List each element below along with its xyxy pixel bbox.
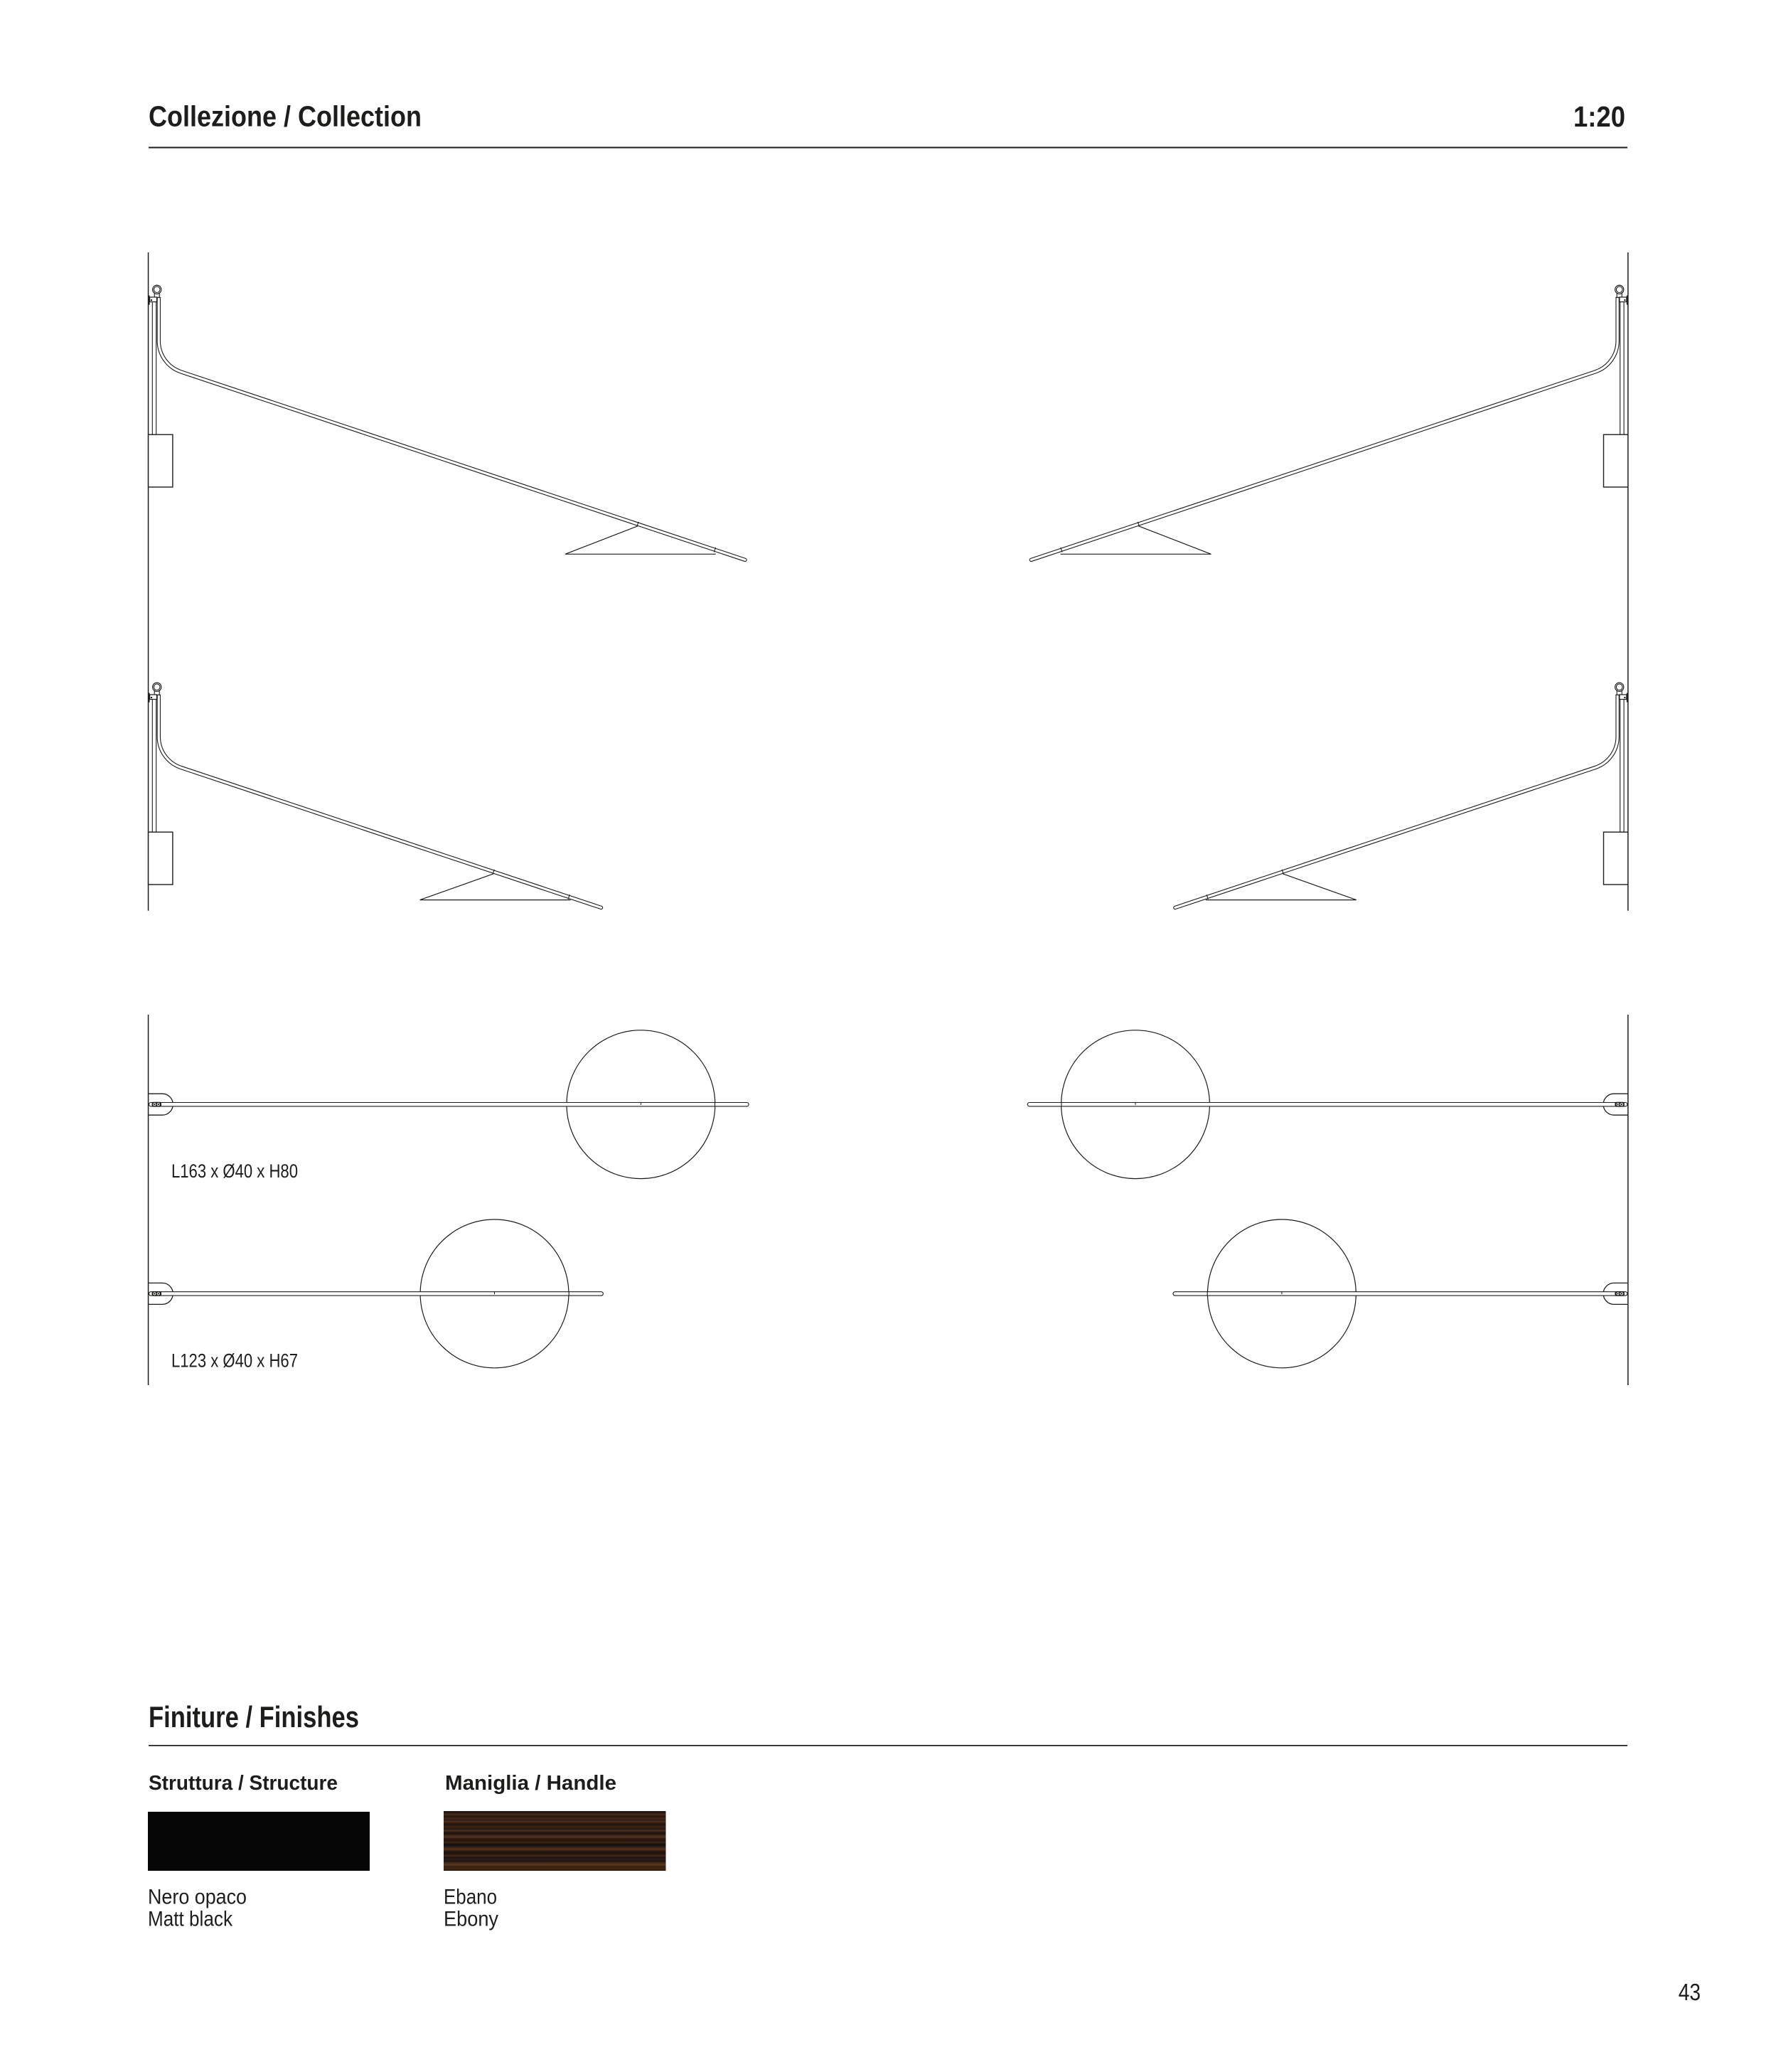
svg-text:1:20: 1:20 — [1573, 100, 1625, 133]
svg-text:Ebano: Ebano — [444, 1886, 497, 1909]
svg-text:Matt black: Matt black — [148, 1908, 232, 1931]
svg-text:Maniglia / Handle: Maniglia / Handle — [445, 1772, 616, 1795]
svg-text:Finiture / Finishes: Finiture / Finishes — [149, 1700, 359, 1734]
svg-text:43: 43 — [1679, 1979, 1701, 2005]
svg-text:L123 x Ø40 x H67: L123 x Ø40 x H67 — [171, 1350, 298, 1372]
svg-text:Nero opaco: Nero opaco — [148, 1886, 247, 1909]
svg-text:Struttura / Structure: Struttura / Structure — [149, 1772, 338, 1795]
svg-text:Ebony: Ebony — [444, 1908, 498, 1931]
svg-text:Collezione / Collection: Collezione / Collection — [149, 100, 422, 133]
svg-text:L163 x Ø40 x H80: L163 x Ø40 x H80 — [171, 1160, 298, 1182]
